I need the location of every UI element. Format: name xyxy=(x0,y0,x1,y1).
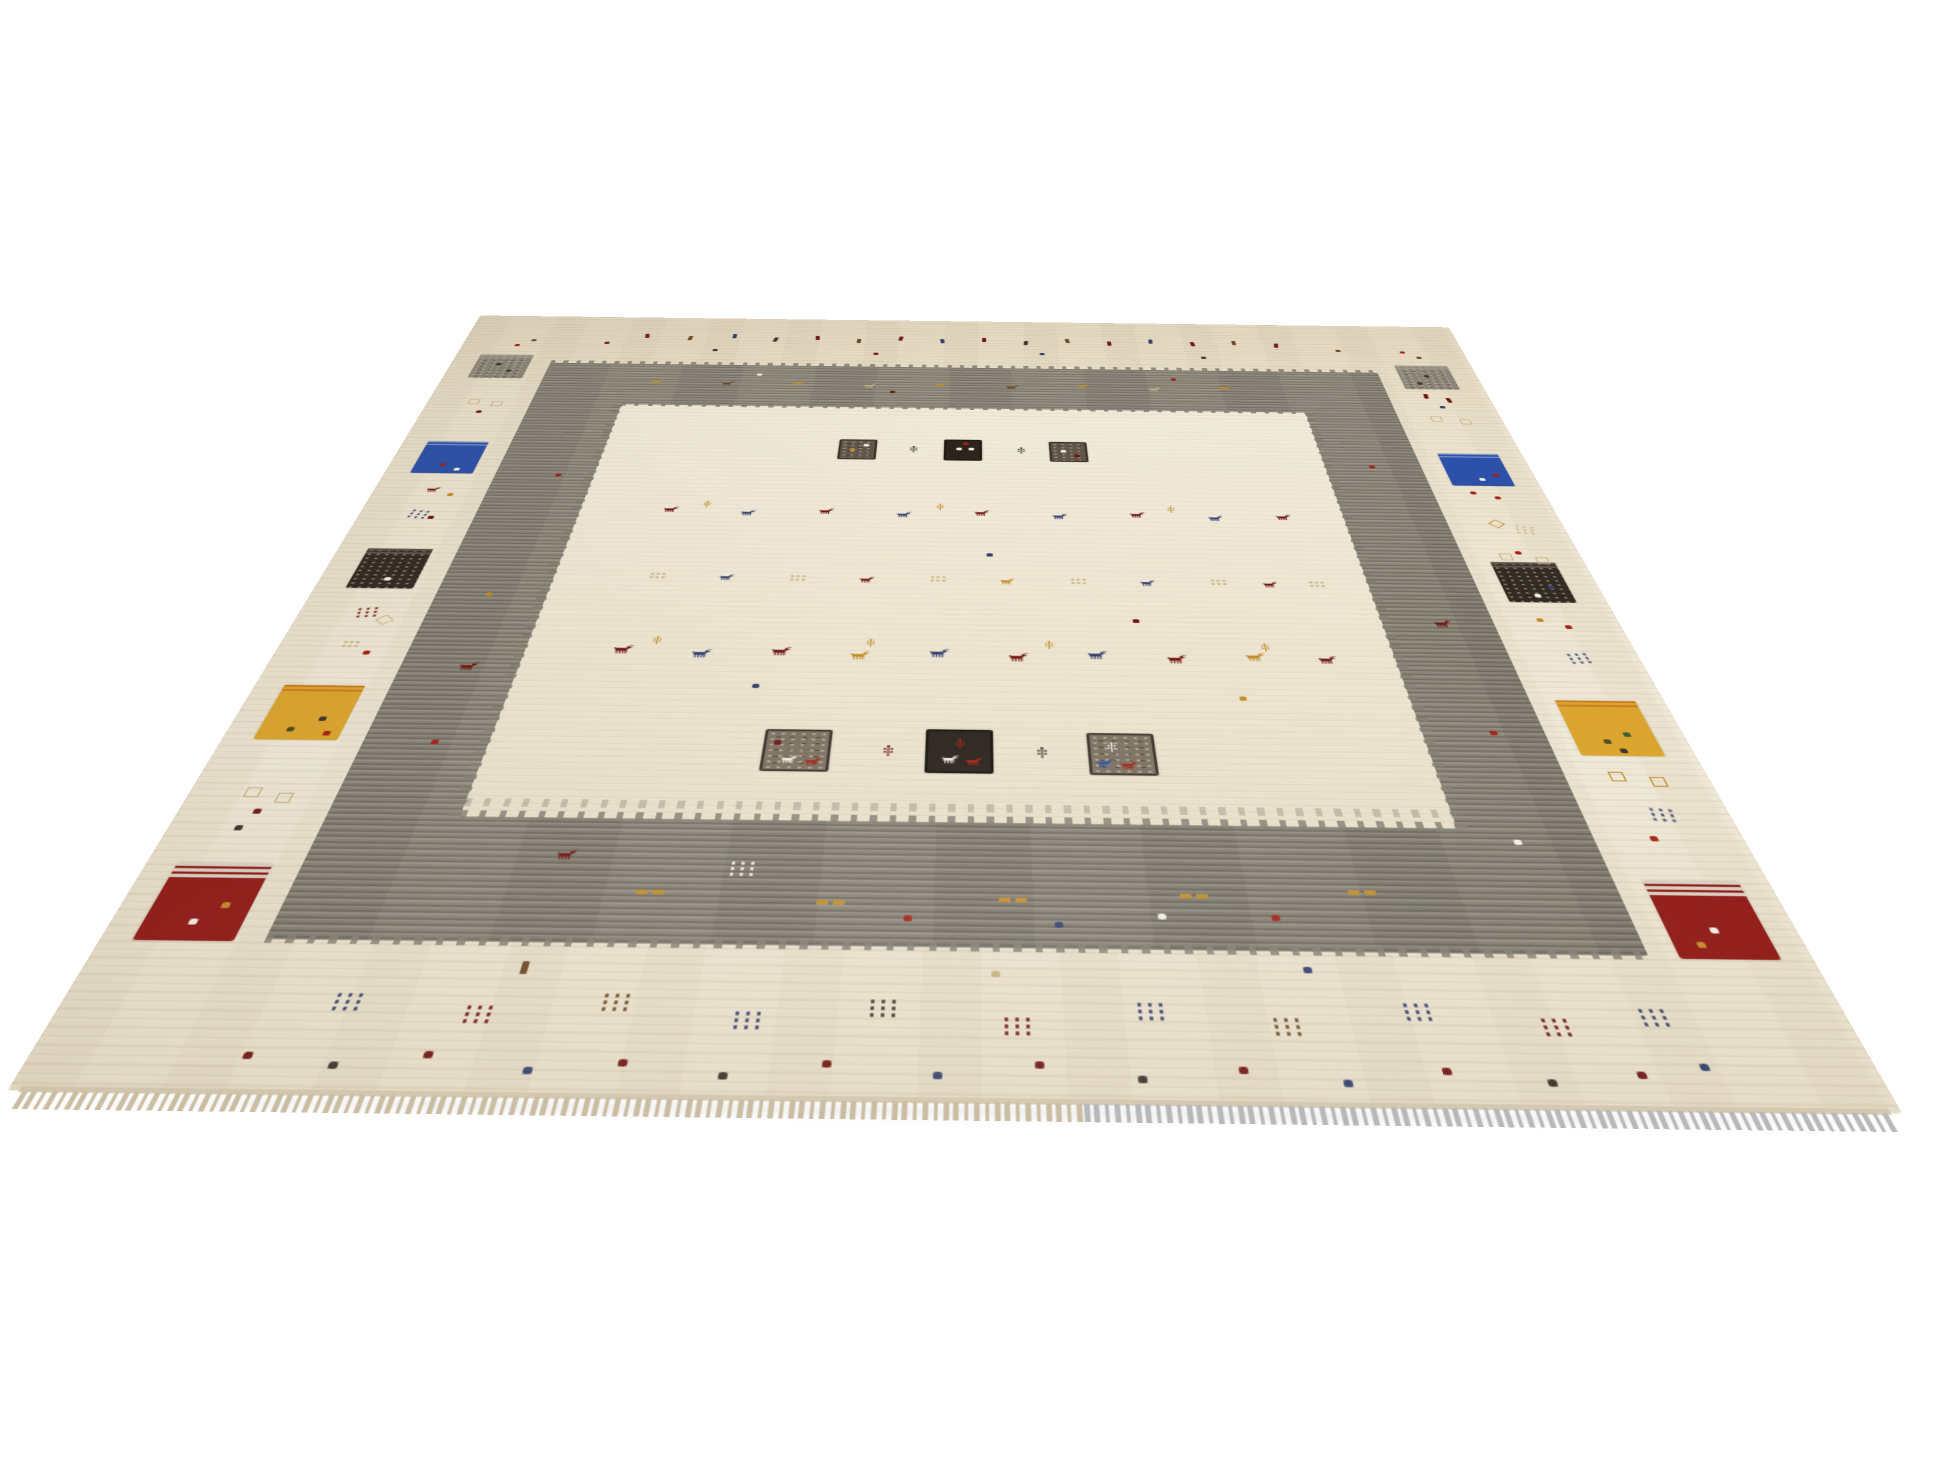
rug-motif-dash xyxy=(687,336,693,340)
rug-motif-dot-grid xyxy=(929,575,946,582)
rug-motif-speck xyxy=(485,592,493,595)
rug-square-stripes xyxy=(1437,453,1500,459)
rug-motif-square-outline xyxy=(1430,417,1443,422)
rug-motif-plant xyxy=(909,446,918,453)
rug-motif-speck xyxy=(604,342,610,344)
rug-motif-dash xyxy=(519,961,529,974)
rug-square xyxy=(410,441,489,473)
rug-motif-animal xyxy=(965,757,983,765)
rug-motif-dot-scatter xyxy=(1269,1016,1304,1036)
rug-motif-animal xyxy=(792,381,806,386)
rug-motif-square-outline xyxy=(1649,777,1669,787)
rug-motif-layer xyxy=(8,316,1903,1114)
rug-motif-speck xyxy=(1603,739,1612,743)
rug-motif-animal xyxy=(457,662,480,670)
rug-square xyxy=(132,862,273,941)
rug-motif-speck xyxy=(1239,696,1247,700)
rug-motif-animal xyxy=(650,379,665,383)
rug-motif-speck xyxy=(1343,1080,1354,1087)
rug-motif-speck xyxy=(362,650,371,654)
rug-motif-dash xyxy=(816,336,820,340)
rug-motif-speck xyxy=(903,915,912,921)
rug-motif-animal xyxy=(612,645,635,654)
rug-motif-animal xyxy=(1244,653,1267,662)
rug-motif-diamond-outline xyxy=(375,615,394,626)
rug-motif-speck xyxy=(514,344,520,346)
rug-motif-animal xyxy=(929,649,950,658)
rug-motif-speck xyxy=(890,391,895,393)
rug-motif-dash xyxy=(772,337,778,341)
rug-motif-diamond-outline xyxy=(1488,520,1505,529)
rug-motif-animal xyxy=(425,487,442,492)
rug-motif-animal xyxy=(1006,385,1020,390)
rug-motif-speck xyxy=(1399,351,1405,353)
rug-motif-dot-grid xyxy=(1209,579,1227,586)
rug-square xyxy=(924,729,993,774)
rug-square-stripes xyxy=(1394,366,1448,370)
rug-motif-speck xyxy=(1369,466,1376,469)
rug-motif-speck xyxy=(1441,1068,1452,1075)
rug-square-stripes xyxy=(168,862,273,879)
rug-motif-plant xyxy=(1044,641,1054,650)
rug-motif-plant xyxy=(955,739,965,749)
rug-motif-speck xyxy=(774,740,782,744)
rug-motif-animal xyxy=(1052,514,1068,520)
rug-motif-plant xyxy=(866,639,876,648)
rug-square xyxy=(345,548,433,588)
rug-motif-speck xyxy=(863,444,869,447)
rug-motif-dash xyxy=(982,338,986,342)
rug-square-stripes xyxy=(280,685,365,694)
rug-motif-speck xyxy=(1547,586,1555,589)
rug-square-stripes xyxy=(1642,880,1747,897)
rug-motif-dash xyxy=(1148,339,1151,343)
rug-motif-animal xyxy=(1096,759,1115,767)
rug-motif-speck xyxy=(430,740,439,744)
rug-motif-speck xyxy=(1303,967,1313,973)
rug-motif-speck xyxy=(1060,450,1066,453)
rug-motif-dot-grid xyxy=(339,640,361,648)
rug-motif-speck xyxy=(476,410,483,412)
rug-motif-speck xyxy=(1171,378,1177,380)
rug-square xyxy=(1049,442,1089,462)
rug-motif-dash-pair xyxy=(999,898,1027,903)
rug-motif-animal xyxy=(1120,761,1139,769)
rug-motif-dot-scatter xyxy=(459,1004,496,1024)
rug-motif-plant xyxy=(1260,643,1272,652)
rug-motif-animal xyxy=(555,849,579,860)
rug-motif-animal xyxy=(974,510,990,516)
rug-motif-dot-scatter xyxy=(1563,652,1593,664)
rug-motif-speck xyxy=(522,1067,533,1074)
rug-motif-speck xyxy=(1439,406,1445,408)
rug-motif-dot-scatter xyxy=(598,992,633,1011)
rug-motif-animal xyxy=(1432,620,1454,628)
rug-motif-speck xyxy=(849,448,855,451)
rug-motif-dot-scatter xyxy=(1536,1017,1574,1037)
rug-motif-plant xyxy=(1166,507,1176,514)
rug-motif-dot-scatter xyxy=(1399,1002,1435,1021)
rug-motif-dot-scatter xyxy=(1646,807,1679,823)
rug-motif-dot-grid xyxy=(1069,578,1086,585)
rug-motif-dash xyxy=(1107,342,1111,346)
rug-motif-dot-scatter xyxy=(1001,1016,1032,1036)
rug-motif-speck xyxy=(1536,618,1544,621)
rug-motif-animal xyxy=(1140,580,1156,586)
rug-motif-speck xyxy=(1649,836,1659,841)
rug-motif-dash xyxy=(645,334,649,338)
rug-motif-plant xyxy=(1017,447,1026,454)
rug-square xyxy=(1394,366,1460,390)
rug-plane xyxy=(8,316,1903,1114)
rug-square xyxy=(468,354,534,378)
rug-motif-animal xyxy=(863,383,877,388)
rug-motif-speck xyxy=(327,1061,339,1068)
rug-motif-speck xyxy=(1494,496,1501,499)
rug-square xyxy=(1555,700,1666,756)
rug-motif-speck xyxy=(447,493,454,496)
rug-motif-animal xyxy=(1218,386,1233,391)
rug-motif-speck xyxy=(752,684,760,688)
rug-motif-plant xyxy=(651,636,663,645)
rug-motif-speck xyxy=(718,1072,728,1079)
rug-motif-plant xyxy=(882,745,895,757)
rug-square xyxy=(1642,880,1781,960)
rug-motif-dot-grid xyxy=(1307,581,1326,588)
rug-motif-speck xyxy=(555,473,562,476)
rug-square-stripes xyxy=(1555,700,1640,710)
rug-motif-animal xyxy=(934,382,948,387)
rug-motif-speck xyxy=(1132,619,1139,622)
rug-motif-animal xyxy=(849,651,870,660)
rug-motif-speck xyxy=(1201,357,1207,359)
rug-motif-speck xyxy=(242,1052,254,1059)
rug-motif-square-outline xyxy=(1459,419,1472,424)
rug-motif-speck xyxy=(933,1072,942,1079)
rug-square-stripes xyxy=(426,441,489,447)
rug-motif-speck xyxy=(1547,1079,1559,1086)
rug-motif-dot-scatter xyxy=(1633,1007,1672,1026)
rug-motif-animal xyxy=(896,512,912,518)
rug-motif-square-outline xyxy=(490,401,503,406)
rug-motif-animal xyxy=(740,510,757,516)
rug-motif-square-outline xyxy=(1535,557,1551,564)
rug-motif-dot-scatter xyxy=(328,992,366,1011)
rug-motif-speck xyxy=(1619,749,1629,753)
rug-motif-speck xyxy=(1698,1064,1710,1071)
rug-motif-speck xyxy=(1271,915,1281,921)
rug-motif-dash xyxy=(857,339,861,343)
rug-motif-plant xyxy=(1106,742,1117,752)
rug-motif-speck xyxy=(1636,1072,1648,1079)
rug-square xyxy=(759,729,833,772)
rug-motif-speck xyxy=(1055,922,1064,928)
rug-motif-speck xyxy=(1158,914,1167,920)
rug-motif-speck xyxy=(252,809,262,814)
rug-motif-speck xyxy=(1238,1067,1248,1074)
rug-motif-dash-pair xyxy=(635,890,664,894)
rug-motif-speck xyxy=(987,553,993,556)
rug-motif-speck xyxy=(956,448,962,451)
rug-motif-speck xyxy=(1074,454,1080,457)
rug-motif-dot-grid xyxy=(648,572,667,579)
rug-motif-speck xyxy=(873,353,878,355)
rug xyxy=(8,316,1903,1114)
rug-motif-speck xyxy=(1622,732,1631,736)
rug-motif-dash xyxy=(732,334,737,338)
rug-motif-dot-scatter xyxy=(729,1010,763,1030)
rug-motif-square-outline xyxy=(1607,772,1627,782)
rug-motif-speck xyxy=(1492,474,1499,477)
rug-motif-dot-scatter xyxy=(1134,1001,1167,1020)
rug-motif-animal xyxy=(721,381,736,386)
rug-motif-speck xyxy=(1479,478,1486,481)
rug-motif-plant xyxy=(1036,747,1048,759)
rug-motif-speck xyxy=(1564,625,1572,629)
rug-motif-animal xyxy=(662,506,679,512)
rug-motif-dot-scatter xyxy=(726,860,756,876)
rug-motif-speck xyxy=(712,349,718,351)
rug-motif-speck xyxy=(233,825,244,830)
rug-motif-plant xyxy=(702,501,712,508)
rug-motif-dash-pair xyxy=(1347,890,1376,894)
rug-motif-dash-pair xyxy=(1180,894,1209,898)
rug-motif-animal xyxy=(859,577,875,583)
rug-square xyxy=(1086,733,1159,776)
rug-motif-square-outline xyxy=(274,793,295,803)
rug-motif-dash xyxy=(898,336,903,340)
rug-motif-plant xyxy=(936,504,945,511)
rug-motif-speck xyxy=(1138,1076,1148,1083)
rug-motif-animal xyxy=(1207,515,1224,521)
rug-motif-speck xyxy=(969,448,975,451)
rug-square xyxy=(1437,453,1515,486)
rug-motif-dot-scatter xyxy=(353,606,379,618)
rug-motif-speck xyxy=(1416,357,1422,359)
rug-motif-dot-grid xyxy=(789,574,807,581)
rug-motif-speck xyxy=(1040,353,1045,355)
rug-motif-animal xyxy=(718,574,735,580)
rug-square xyxy=(837,439,878,459)
rug-motif-dash xyxy=(1445,398,1452,403)
rug-motif-animal xyxy=(1166,655,1188,664)
rug-motif-speck xyxy=(1534,594,1542,597)
rug-motif-animal xyxy=(690,649,713,658)
rug-motif-speck xyxy=(991,971,1000,977)
photo-scene xyxy=(0,0,1946,1460)
rug-motif-animal xyxy=(1076,384,1090,389)
rug-motif-dash xyxy=(1423,394,1428,399)
rug-motif-animal xyxy=(770,647,792,656)
rug-motif-dash xyxy=(1190,342,1195,346)
rug-motif-square-outline xyxy=(467,399,480,404)
rug-motif-animal xyxy=(1087,651,1108,660)
rug-motif-animal xyxy=(1262,581,1279,587)
rug-motif-animal xyxy=(941,755,959,763)
rug-motif-dash-pair xyxy=(816,900,845,905)
rug-motif-speck xyxy=(1423,375,1429,377)
rug-motif-square-outline xyxy=(1498,554,1514,561)
rug-motif-animal xyxy=(803,757,822,765)
rug-square-stripes xyxy=(365,548,433,554)
rug-motif-animal xyxy=(1147,387,1161,392)
rug-motif-speck xyxy=(427,516,435,519)
rug-motif-animal xyxy=(780,755,799,763)
rug-square xyxy=(253,685,365,740)
rug-motif-square-outline xyxy=(242,787,263,797)
rug-motif-speck xyxy=(1514,551,1522,554)
rug-motif-speck xyxy=(1513,840,1523,845)
rug-motif-speck xyxy=(963,442,969,444)
rug-motif-animal xyxy=(1275,514,1292,520)
rug-motif-dash xyxy=(1231,341,1236,345)
rug-motif-speck xyxy=(1470,491,1477,494)
rug-motif-speck xyxy=(822,1060,832,1067)
rug-motif-speck xyxy=(617,1059,628,1066)
rug-motif-speck xyxy=(423,1051,435,1058)
rug-motif-animal xyxy=(1317,656,1339,664)
rug-motif-dash xyxy=(1064,339,1069,343)
rug-motif-speck xyxy=(757,373,763,375)
rug-motif-animal xyxy=(818,508,834,514)
rug-motif-animal xyxy=(1000,578,1015,584)
rug-motif-dash xyxy=(1274,343,1278,347)
rug-motif-animal xyxy=(1129,512,1145,518)
rug-square-stripes xyxy=(479,354,534,358)
rug-motif-dot-scatter xyxy=(1513,525,1536,535)
rug-square xyxy=(1490,562,1577,603)
rug-motif-speck xyxy=(1335,350,1341,352)
rug-motif-animal xyxy=(1008,653,1029,662)
rug-motif-speck xyxy=(1035,1061,1045,1068)
rug-motif-dash xyxy=(940,339,944,343)
rug-motif-speck xyxy=(1489,731,1498,735)
rug-motif-dot-scatter xyxy=(866,998,897,1017)
rug-motif-speck xyxy=(531,339,537,341)
photo-page: { "scene": { "background": "#ffffff", "s… xyxy=(0,0,1946,1460)
rug-motif-speck xyxy=(1417,382,1423,384)
rug-motif-dash xyxy=(1023,341,1027,345)
